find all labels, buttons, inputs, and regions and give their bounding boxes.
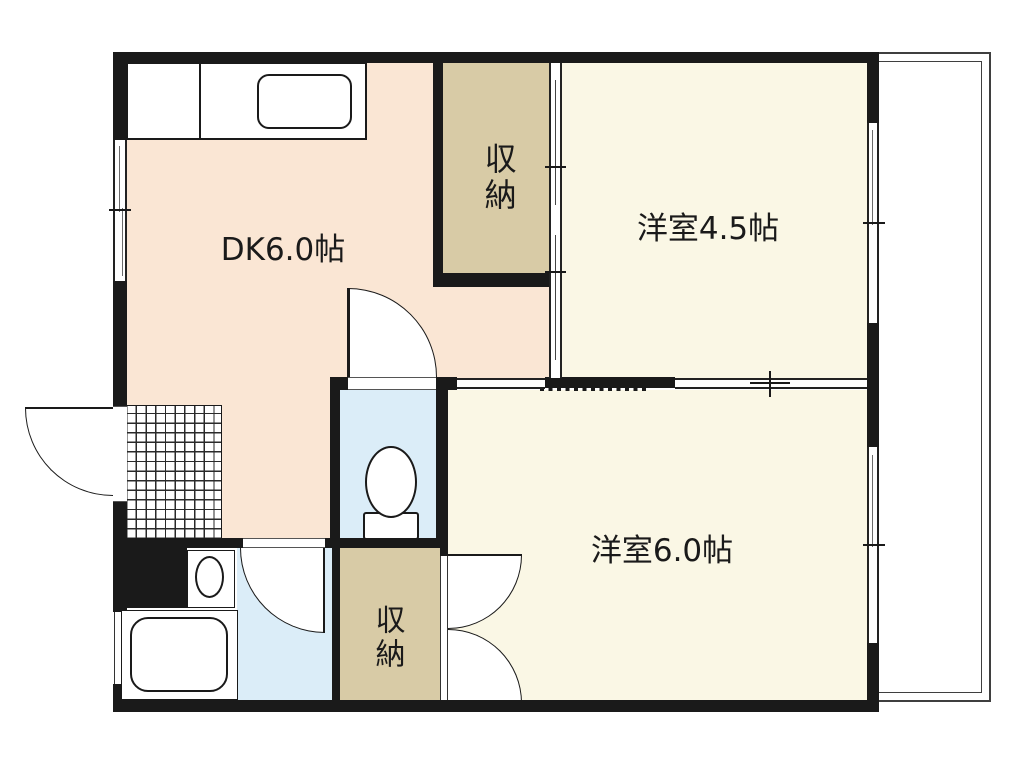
wall-closet-bottom-jamb-top [440,548,448,556]
room-label-western-6-0: 洋室6.0帖 [550,525,774,570]
partition-tick-1 [545,166,566,168]
wall-left-2 [113,281,127,406]
wall-right-2 [867,323,879,447]
wall-45-60-left [436,377,457,390]
wall-right-1 [867,52,879,123]
wall-toilet-left [330,377,340,548]
balcony-inner [879,61,982,693]
window-left-tick [109,209,131,211]
toilet-door-leaf [347,288,350,377]
wall-toilet-top [330,377,348,390]
washroom-door-leaf [323,548,326,633]
washroom-doorway [243,538,325,548]
wall-45-60-mid [545,377,675,388]
entrance-opening [113,406,127,502]
entrance-door-arc [25,408,113,496]
closet-bottom-label: 収納 [371,598,403,678]
closet-bottom-jamb [440,556,448,700]
wall-closet-top-left [433,63,443,287]
sliding-window-4-5-6-0-tick-v [769,371,771,397]
window-left-panel2 [122,208,124,276]
room-label-dk: DK6.0帖 [180,224,386,269]
kitchen-sink [257,74,352,129]
closet-door-lower-leaf [448,700,522,703]
bathtub [130,617,228,692]
room-dk-floor-extension [433,287,550,378]
wall-right-3 [867,643,879,700]
partition-tick-2 [545,271,566,273]
toilet-doorway [348,377,436,390]
wall-washroom-top-right [325,538,340,548]
closet-door-upper-leaf [448,554,522,557]
sliding-window-4-5-6-0-tick-h [750,382,790,384]
toilet-bowl [365,446,417,518]
wall-washroom-closet-divider [332,548,340,700]
floor-plan: DK6.0帖 洋室4.5帖 洋室6.0帖 収納 収納 [0,0,1024,768]
room-label-western-4-5: 洋室4.5帖 [600,203,816,248]
partition-panel-lower [555,235,557,360]
wall-closet-top-bottom [433,273,553,287]
sliding-door-dk-6-0 [457,378,545,389]
wall-mass-bathroom [113,540,187,608]
partition-panel-upper [555,80,557,205]
window-left-panel [119,146,121,212]
entrance-door-leaf [25,407,113,410]
washbasin-bowl [195,556,224,598]
kitchen-counter-divider [199,63,201,140]
closet-top-label: 収納 [481,135,515,221]
wall-left-1 [113,52,127,140]
window-right-4-5-panel [872,130,874,225]
wall-toilet-right [436,377,448,548]
entrance-tile [125,405,222,540]
window-right-6-0-panel [872,455,874,547]
wall-45-60-dotted-opening [540,388,648,391]
wall-top [113,52,879,63]
